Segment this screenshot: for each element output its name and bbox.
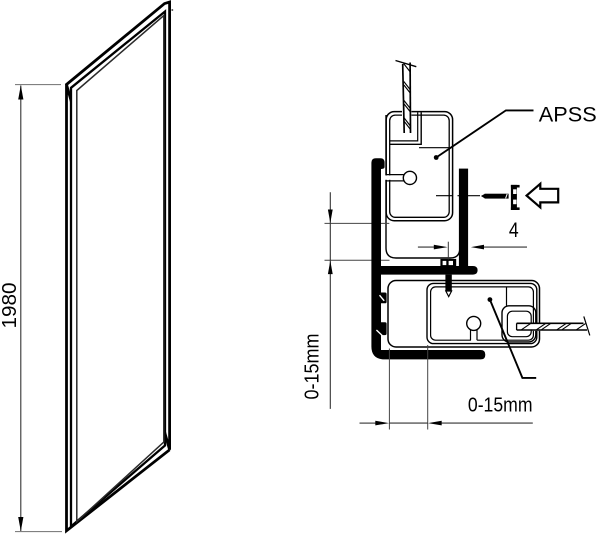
svg-text:1980: 1980 (0, 283, 21, 329)
svg-text:APSS: APSS (539, 101, 597, 126)
svg-text:4: 4 (509, 219, 519, 242)
svg-text:0-15mm: 0-15mm (468, 393, 533, 416)
svg-text:0-15mm: 0-15mm (301, 334, 324, 400)
